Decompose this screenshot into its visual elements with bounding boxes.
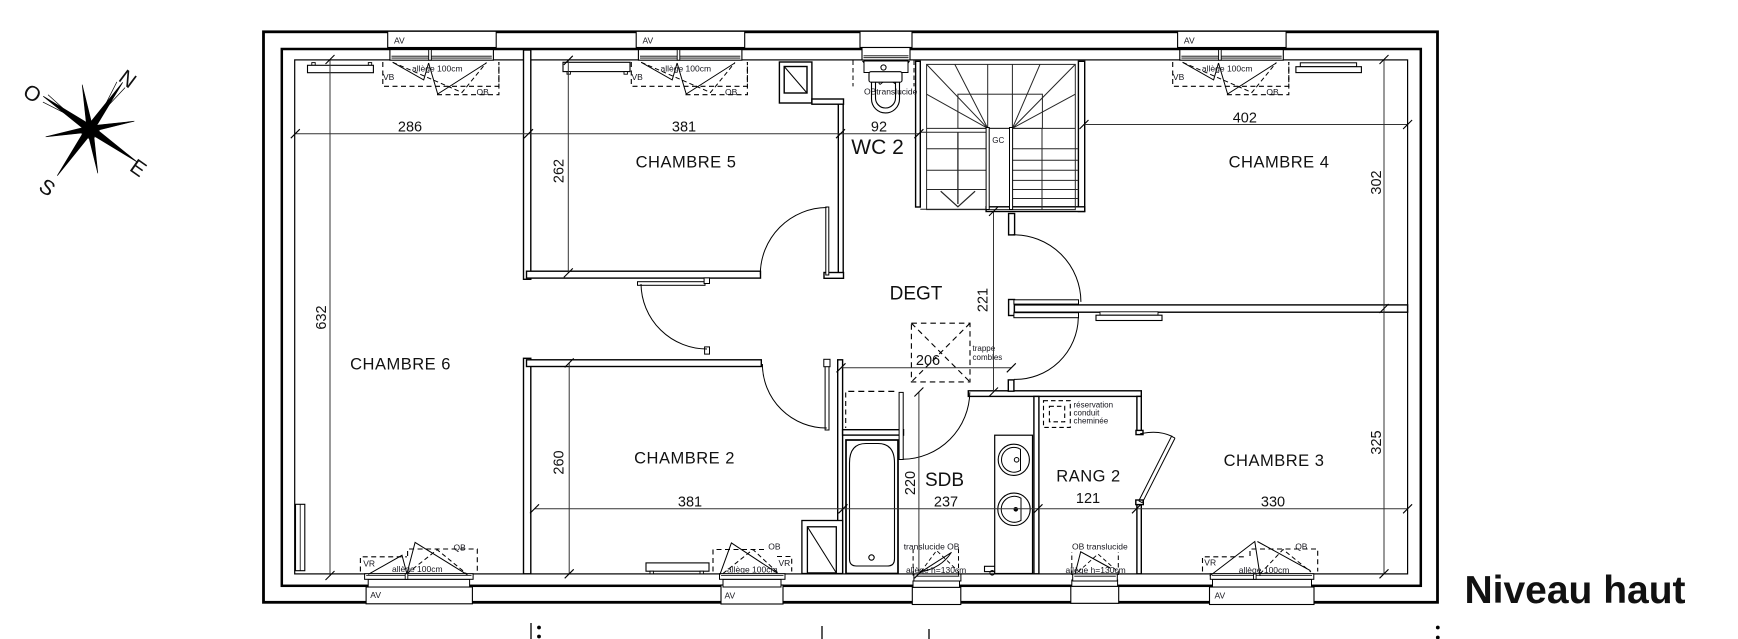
svg-text:206: 206 (916, 353, 940, 369)
svg-text:QB: QB (454, 542, 467, 552)
svg-text:302: 302 (1369, 170, 1385, 194)
svg-text:cheminée: cheminée (1074, 417, 1109, 426)
svg-text:QB: QB (1295, 541, 1308, 551)
svg-text:OB translucide: OB translucide (1072, 542, 1128, 552)
svg-text:381: 381 (678, 495, 702, 511)
svg-text:330: 330 (1261, 495, 1285, 511)
svg-text:AV: AV (1215, 591, 1226, 601)
svg-text:VR: VR (363, 559, 375, 569)
svg-text:Niveau haut: Niveau haut (1464, 569, 1685, 612)
svg-text:allège 100cm: allège 100cm (1239, 565, 1290, 575)
svg-text:WC 2: WC 2 (851, 136, 904, 159)
svg-text:allège 100cm: allège 100cm (727, 565, 778, 575)
svg-text:121: 121 (1076, 491, 1100, 507)
svg-text:combles: combles (973, 353, 1003, 362)
svg-text:RANG 2: RANG 2 (1056, 468, 1120, 486)
svg-text:allège 100cm: allège 100cm (392, 564, 443, 574)
svg-text:GC: GC (992, 136, 1004, 145)
svg-text:CHAMBRE 4: CHAMBRE 4 (1229, 154, 1330, 172)
svg-text:632: 632 (314, 305, 330, 329)
svg-text:325: 325 (1369, 430, 1385, 454)
svg-text:CHAMBRE 3: CHAMBRE 3 (1224, 452, 1325, 470)
svg-text:CHAMBRE 6: CHAMBRE 6 (350, 356, 451, 374)
svg-text:CHAMBRE 5: CHAMBRE 5 (636, 154, 737, 172)
svg-text:381: 381 (672, 119, 696, 135)
svg-text:VR: VR (1204, 557, 1216, 567)
svg-text:allège h=130cm: allège h=130cm (1066, 565, 1126, 575)
svg-text:402: 402 (1233, 111, 1257, 127)
svg-text:92: 92 (871, 119, 887, 135)
svg-text:220: 220 (903, 471, 919, 495)
svg-text:CHAMBRE 2: CHAMBRE 2 (634, 450, 735, 468)
svg-text:OB: OB (768, 542, 781, 552)
svg-text:286: 286 (398, 119, 422, 135)
svg-text:trappe: trappe (973, 344, 996, 353)
svg-text:VR: VR (779, 558, 791, 568)
svg-text:DEGT: DEGT (890, 284, 943, 305)
svg-text:allège h=130cm: allège h=130cm (906, 565, 966, 575)
svg-text:translucide OB: translucide OB (904, 542, 960, 552)
svg-text:237: 237 (934, 495, 958, 511)
svg-text:SDB: SDB (925, 470, 964, 491)
svg-text:260: 260 (552, 450, 568, 474)
svg-text:AV: AV (725, 591, 736, 601)
svg-text:262: 262 (552, 159, 568, 183)
svg-text:221: 221 (976, 288, 992, 312)
svg-text:AV: AV (370, 590, 381, 600)
